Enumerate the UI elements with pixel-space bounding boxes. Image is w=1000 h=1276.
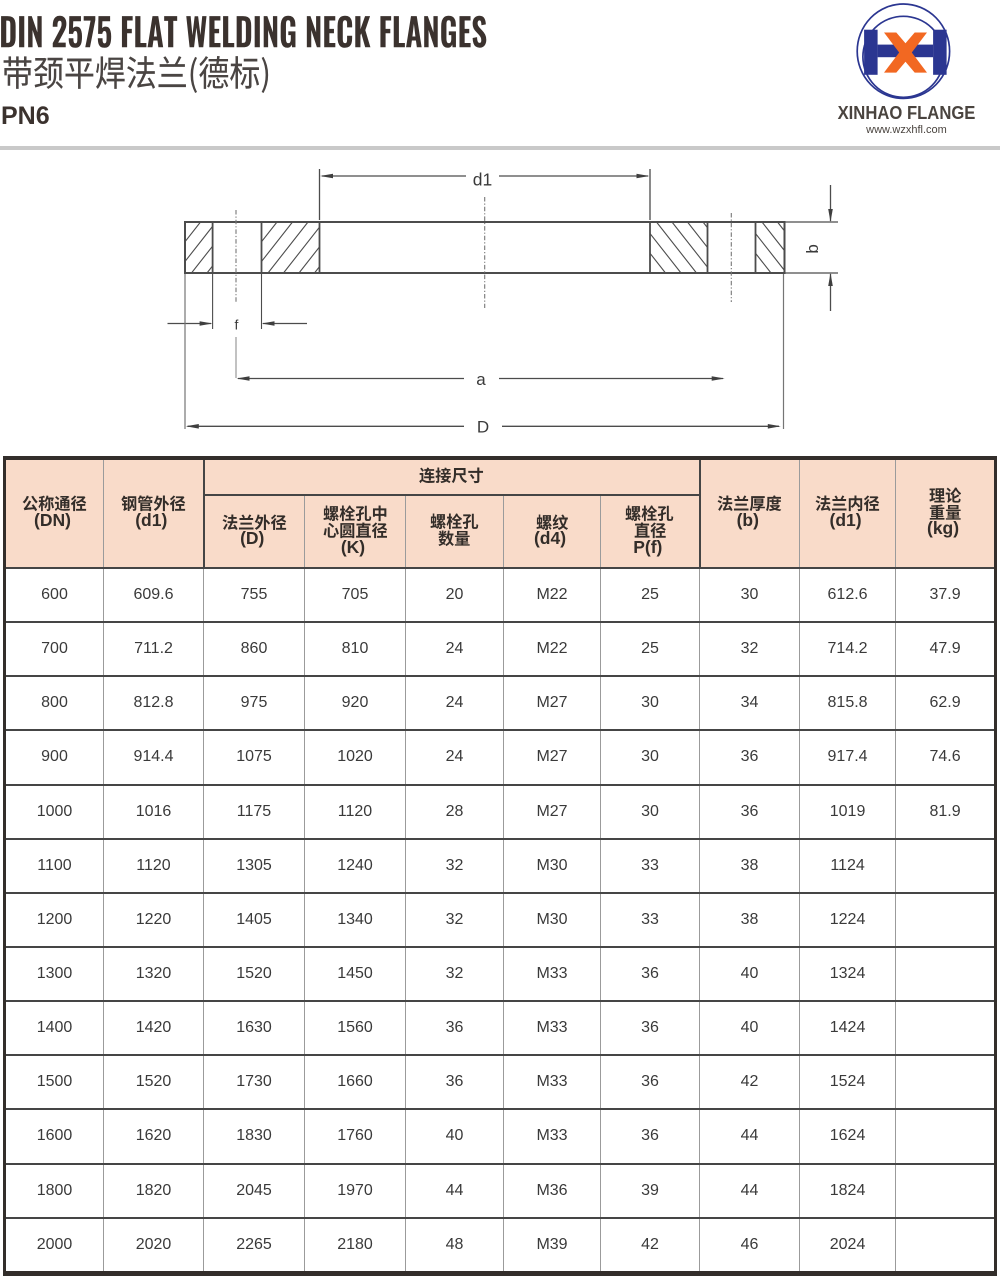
svg-text:a: a [476,370,486,389]
svg-text:f: f [234,317,238,333]
svg-text:D: D [477,418,489,437]
svg-text:b: b [803,244,822,253]
svg-text:d1: d1 [473,170,492,190]
